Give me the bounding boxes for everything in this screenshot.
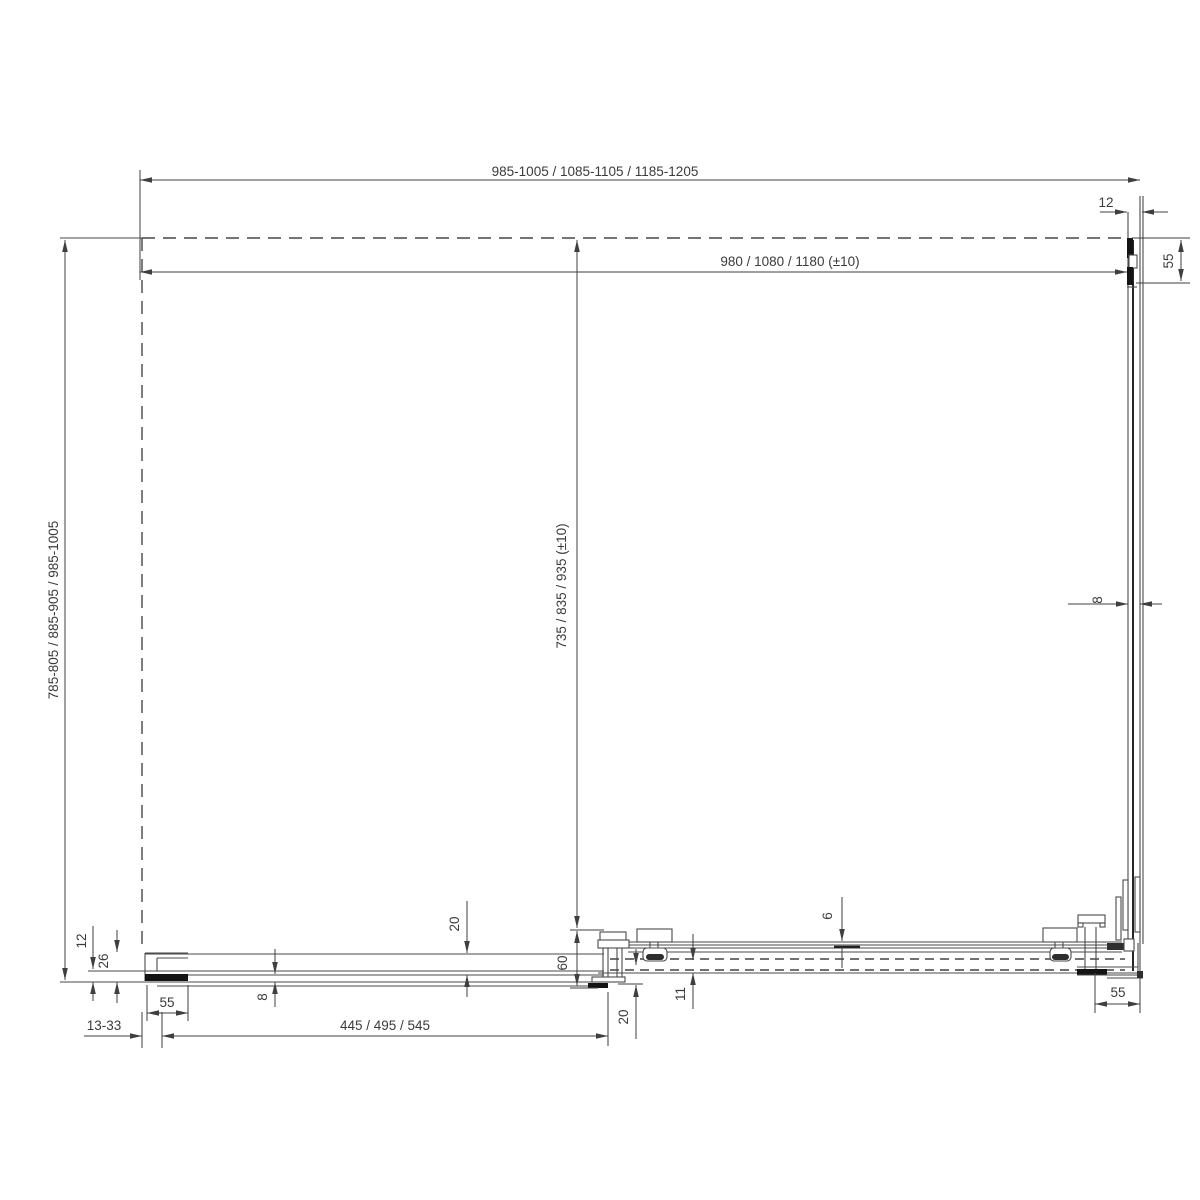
- dim-depth-overall-label: 785-805 / 885-905 / 985-1005: [46, 521, 61, 700]
- dim-profile-55-bottom-right: 55: [1095, 973, 1140, 1013]
- dim-glass-8-right-label: 8: [1090, 596, 1105, 604]
- dim-width-overall: 985-1005 / 1085-1105 / 1185-1205: [140, 164, 1140, 280]
- dim-wall-26-label: 26: [96, 953, 111, 968]
- dim-profile-12-label: 12: [1098, 195, 1113, 210]
- dim-glass-8-left-label: 8: [255, 993, 270, 1001]
- fixed-panel-edge-view: [60, 954, 612, 986]
- dim-gap-6: 6: [820, 897, 860, 968]
- technical-drawing-page: 985-1005 / 1085-1105 / 1185-1205 980 / 1…: [0, 0, 1200, 1200]
- dim-profile-55-left-label: 55: [159, 995, 174, 1010]
- dim-width-glass-label: 980 / 1080 / 1180 (±10): [720, 254, 859, 269]
- dim-overlap-60-label: 60: [555, 955, 570, 970]
- dim-profile-55-bottom-right-label: 55: [1110, 985, 1125, 1000]
- dim-glass-8-right: 8: [1068, 596, 1162, 604]
- dim-rail-offset-20-label: 20: [447, 916, 462, 931]
- dim-rail-height-11-label: 11: [673, 987, 688, 1001]
- dim-profile-55-right-label: 55: [1161, 253, 1176, 268]
- wall-reference-lines: [60, 238, 1127, 947]
- dim-depth-glass-label: 735 / 835 / 935 (±10): [554, 523, 569, 648]
- dim-profile-55-left: 55: [147, 985, 188, 1021]
- left-wall-profile: [145, 953, 188, 981]
- right-glass-panel: [1128, 196, 1143, 976]
- dim-wall-12: 12: [74, 926, 93, 1001]
- dim-wall-26: 26: [96, 930, 117, 1003]
- dim-profile-12-top-right: 12: [1098, 195, 1168, 212]
- dim-gap-6-label: 6: [820, 912, 835, 920]
- dim-wall-12-label: 12: [74, 933, 89, 948]
- dim-depth-glass: 735 / 835 / 935 (±10): [554, 240, 577, 928]
- dim-width-glass: 980 / 1080 / 1180 (±10): [140, 254, 1127, 272]
- dim-width-overall-label: 985-1005 / 1085-1105 / 1185-1205: [492, 164, 699, 179]
- dim-fixed-panel-width-label: 445 / 495 / 545: [340, 1018, 430, 1033]
- dim-fixed-panel-width: 445 / 495 / 545: [162, 992, 608, 1046]
- drawing-canvas: 985-1005 / 1085-1105 / 1185-1205 980 / 1…: [0, 0, 1200, 1200]
- dim-glass-8-left: 8: [255, 949, 275, 1007]
- dim-door-gap-20-label: 20: [616, 1009, 631, 1024]
- dim-adjustment-13-33: 13-33: [84, 1012, 162, 1048]
- dim-profile-55-right: 55: [1132, 238, 1190, 283]
- dim-depth-overall: 785-805 / 885-905 / 985-1005: [46, 240, 65, 980]
- panel-clamp-bracket: [588, 932, 629, 988]
- right-wall-profile: [1127, 238, 1137, 287]
- dim-door-gap-20: 20: [616, 949, 643, 1039]
- dim-adjustment-13-33-label: 13-33: [87, 1018, 122, 1033]
- dim-rail-offset-20: 20: [447, 901, 467, 997]
